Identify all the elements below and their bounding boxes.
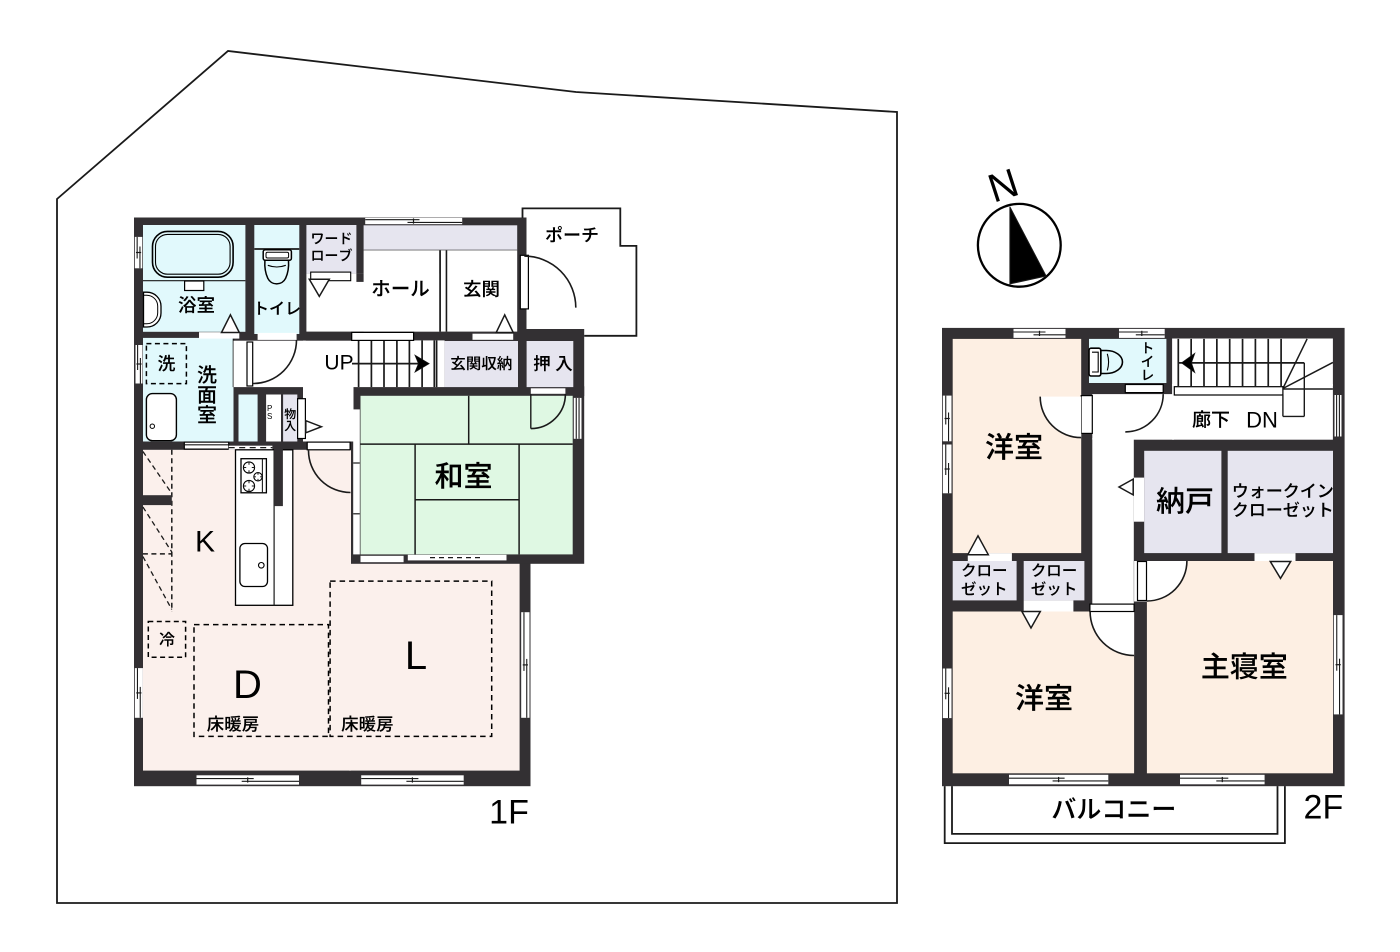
svg-text:1F: 1F <box>489 794 529 832</box>
svg-text:2F: 2F <box>1304 789 1344 827</box>
svg-text:K: K <box>195 526 215 559</box>
svg-text:S: S <box>267 412 272 421</box>
svg-text:D: D <box>233 663 262 707</box>
svg-text:UP: UP <box>324 351 353 374</box>
svg-text:L: L <box>405 634 427 678</box>
svg-text:DN: DN <box>1246 407 1278 432</box>
